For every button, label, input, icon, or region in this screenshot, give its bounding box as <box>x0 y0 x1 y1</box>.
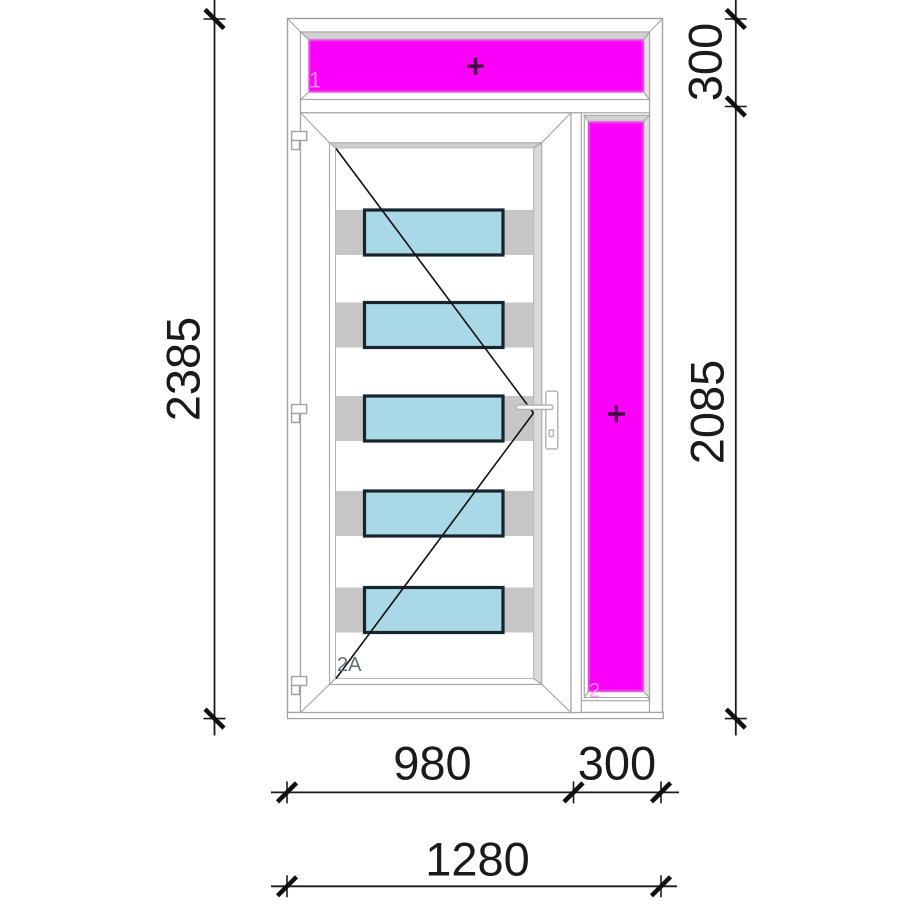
svg-text:2A: 2A <box>337 654 362 676</box>
svg-text:300: 300 <box>578 737 656 790</box>
svg-text:2: 2 <box>589 680 600 702</box>
svg-text:2085: 2085 <box>681 360 734 465</box>
svg-text:2385: 2385 <box>157 317 210 422</box>
svg-text:1280: 1280 <box>425 833 530 886</box>
svg-text:1: 1 <box>309 68 321 93</box>
svg-text:980: 980 <box>393 737 471 790</box>
svg-text:300: 300 <box>679 23 732 101</box>
